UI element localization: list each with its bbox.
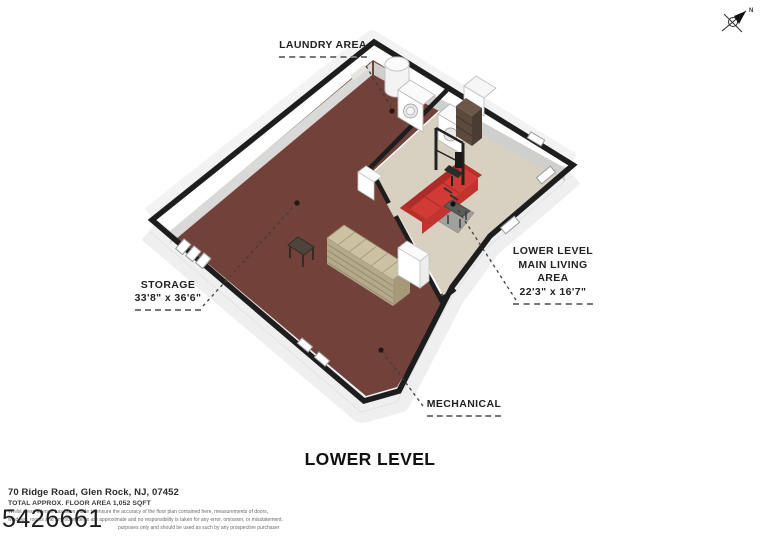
- storage-name: STORAGE: [135, 279, 202, 292]
- floor-plan-page: N LAUNDRY AREA STORAGE 33'8" x 36'6" LOW…: [0, 0, 768, 542]
- living-label-line3: AREA: [513, 272, 593, 286]
- compass-icon: N: [722, 8, 753, 32]
- living-label-line2: MAIN LIVING: [513, 259, 593, 273]
- property-address: 70 Ridge Road, Glen Rock, NJ, 07452: [8, 487, 428, 498]
- living-label-line1: LOWER LEVEL: [513, 245, 593, 259]
- storage-dimensions: 33'8" x 36'6": [135, 292, 202, 305]
- page-title: LOWER LEVEL: [270, 449, 470, 470]
- compass-north-arrow: [734, 11, 746, 24]
- mechanical-label: MECHANICAL: [399, 398, 529, 417]
- watermark-id: 5426661: [2, 505, 103, 534]
- living-area-label: LOWER LEVEL MAIN LIVING AREA 22'3" x 16'…: [487, 245, 619, 305]
- compass-north-label: N: [749, 8, 753, 14]
- living-dimensions: 22'3" x 16'7": [513, 286, 593, 300]
- storage-label: STORAGE 33'8" x 36'6": [103, 279, 233, 311]
- laundry-area-label: LAUNDRY AREA: [258, 39, 388, 58]
